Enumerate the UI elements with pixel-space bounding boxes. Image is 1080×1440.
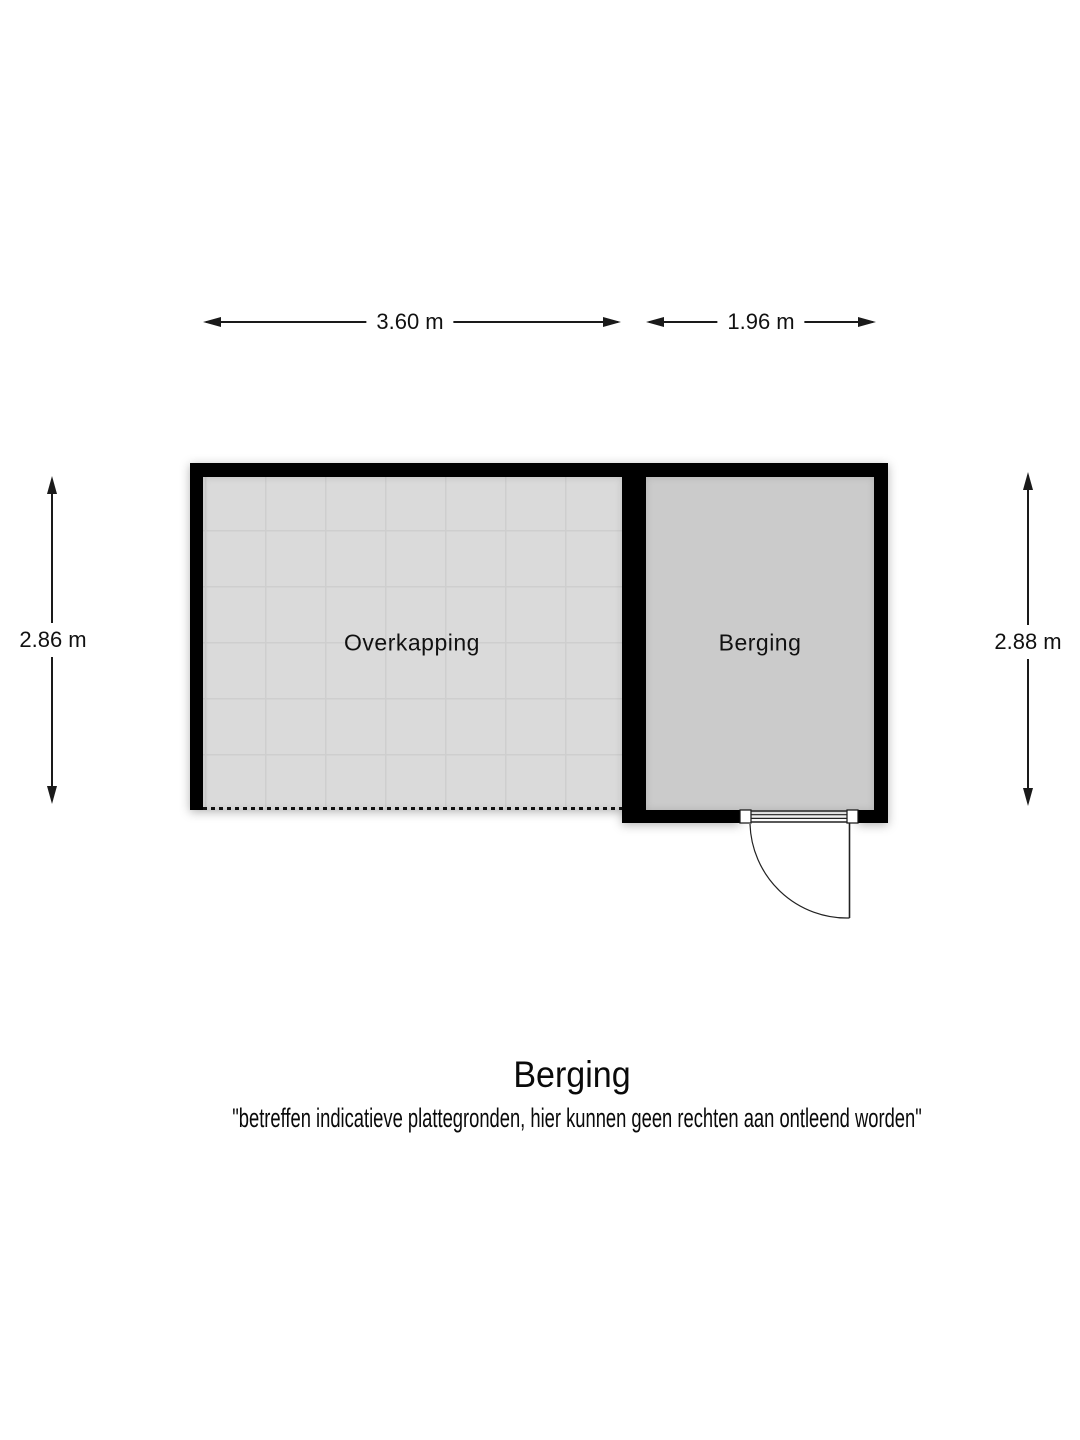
dim-label-berging-height: 2.88 m — [990, 625, 1065, 659]
overkapping-open-edge-dashed-line — [203, 807, 622, 810]
wall-bottom-left-of-door — [646, 810, 740, 823]
wall-bottom-right-of-door — [858, 810, 888, 823]
wall-right — [874, 463, 888, 823]
disclaimer-text: "betreffen indicatieve plattegronden, hi… — [232, 1103, 921, 1134]
dim-label-berging-width: 1.96 m — [717, 306, 804, 338]
room-label-berging: Berging — [719, 630, 802, 657]
wall-top — [190, 463, 888, 477]
floorplan — [0, 0, 1080, 1440]
wall-left — [190, 463, 203, 810]
room-label-overkapping: Overkapping — [344, 630, 480, 657]
floorplan-page: 3.60 m 1.96 m 2.86 m 2.88 m Overkapping … — [0, 0, 1080, 1440]
dim-label-overkapping-height: 2.86 m — [15, 623, 90, 657]
dim-label-overkapping-width: 3.60 m — [366, 306, 453, 338]
page-title: Berging — [513, 1054, 630, 1096]
wall-middle — [622, 463, 646, 823]
